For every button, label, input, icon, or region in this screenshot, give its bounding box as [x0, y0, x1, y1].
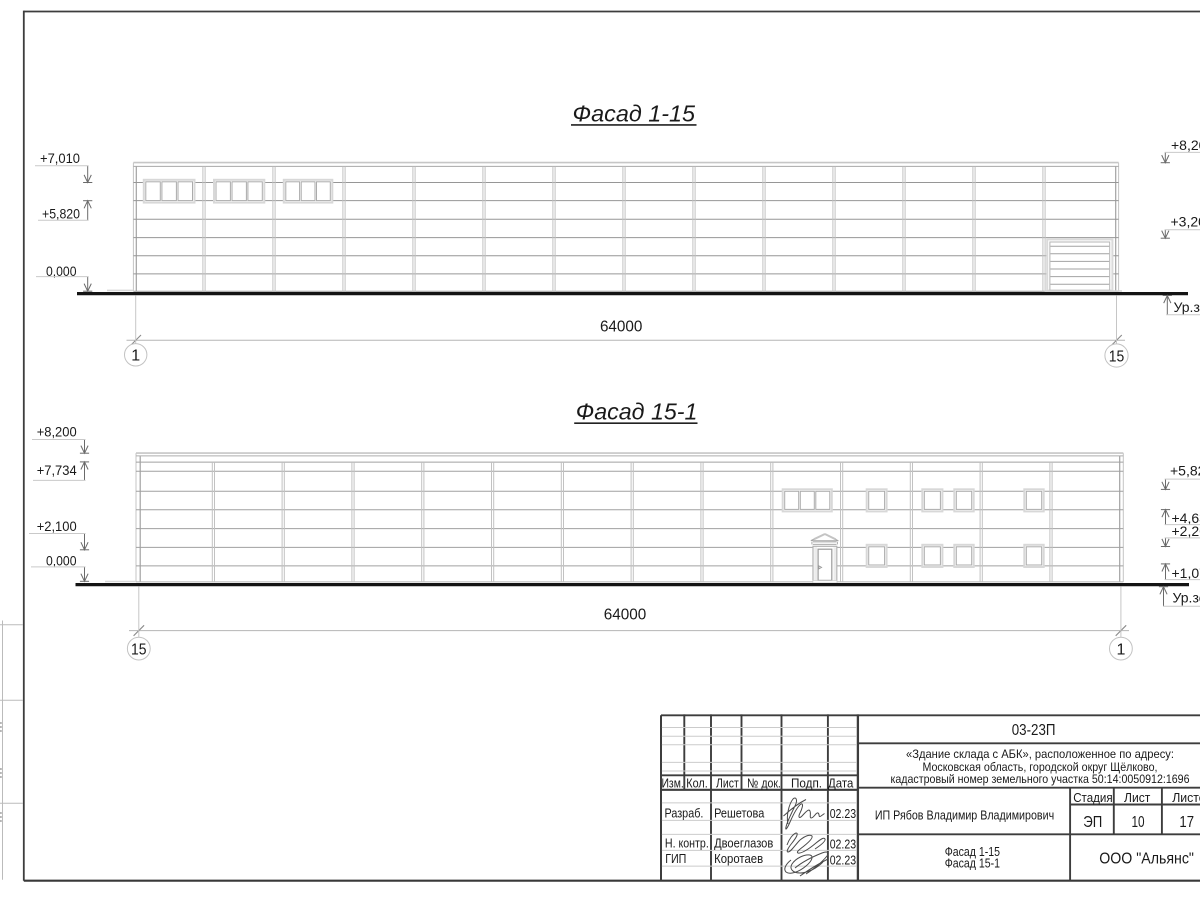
svg-text:Двоеглазов: Двоеглазов — [714, 836, 773, 851]
svg-text:15: 15 — [131, 641, 147, 658]
svg-text:17: 17 — [1179, 814, 1194, 831]
svg-text:Разраб.: Разраб. — [665, 805, 704, 820]
svg-text:1: 1 — [131, 348, 140, 365]
svg-text:+1,070: +1,070 — [1172, 565, 1200, 581]
svg-text:Н. контр.: Н. контр. — [665, 836, 709, 851]
svg-text:1: 1 — [1116, 641, 1125, 658]
svg-text:02.23: 02.23 — [830, 837, 856, 852]
svg-text:Ур.земли: Ур.земли — [1174, 299, 1200, 315]
svg-text:Стадия: Стадия — [1073, 790, 1112, 805]
svg-text:Кол.: Кол. — [686, 775, 707, 790]
svg-text:кадастровый номер земельного у: кадастровый номер земельного участка 50:… — [891, 772, 1190, 786]
svg-text:ИП Рябов Владимир Владимирович: ИП Рябов Владимир Владимирович — [875, 807, 1054, 822]
svg-text:+7,734: +7,734 — [37, 462, 77, 478]
svg-text:Коротаев: Коротаев — [714, 851, 763, 866]
svg-text:Лист: Лист — [1124, 790, 1150, 805]
svg-text:03-23П: 03-23П — [1012, 722, 1056, 739]
svg-text:0,000: 0,000 — [46, 553, 77, 569]
svg-text:Фасад 15-1: Фасад 15-1 — [576, 398, 698, 424]
svg-text:ГИП: ГИП — [665, 851, 686, 866]
svg-text:Листов: Листов — [1172, 790, 1200, 805]
svg-text:+7,010: +7,010 — [40, 150, 80, 166]
svg-text:02.23: 02.23 — [830, 806, 856, 821]
svg-text:+2,260: +2,260 — [1172, 523, 1200, 539]
svg-text:+8,200: +8,200 — [1171, 137, 1200, 153]
svg-text:+8,200: +8,200 — [37, 423, 77, 439]
svg-text:02.23: 02.23 — [830, 852, 856, 867]
svg-text:Фасад 1-15: Фасад 1-15 — [573, 100, 696, 126]
svg-text:+5,820: +5,820 — [1170, 462, 1200, 478]
svg-text:Лист: Лист — [716, 775, 739, 790]
svg-text:+2,100: +2,100 — [37, 518, 77, 534]
svg-text:10: 10 — [1131, 814, 1144, 831]
svg-text:Изм.: Изм. — [661, 775, 683, 790]
svg-text:+3,200: +3,200 — [1171, 213, 1200, 229]
svg-text:64000: 64000 — [600, 319, 643, 336]
svg-text:ЭП: ЭП — [1083, 814, 1102, 831]
svg-text:№ док.: № док. — [747, 775, 781, 790]
svg-text:Фасад 15-1: Фасад 15-1 — [945, 856, 1000, 871]
svg-text:ООО "Альянс": ООО "Альянс" — [1099, 850, 1194, 867]
svg-text:+5,820: +5,820 — [42, 206, 80, 222]
svg-text:Дата: Дата — [828, 775, 854, 790]
svg-text:64000: 64000 — [604, 607, 647, 624]
svg-text:Ур.земли: Ур.земли — [1173, 589, 1200, 605]
svg-text:Решетова: Решетова — [714, 805, 765, 820]
svg-text:Подп.: Подп. — [791, 775, 822, 790]
svg-text:15: 15 — [1109, 348, 1125, 365]
